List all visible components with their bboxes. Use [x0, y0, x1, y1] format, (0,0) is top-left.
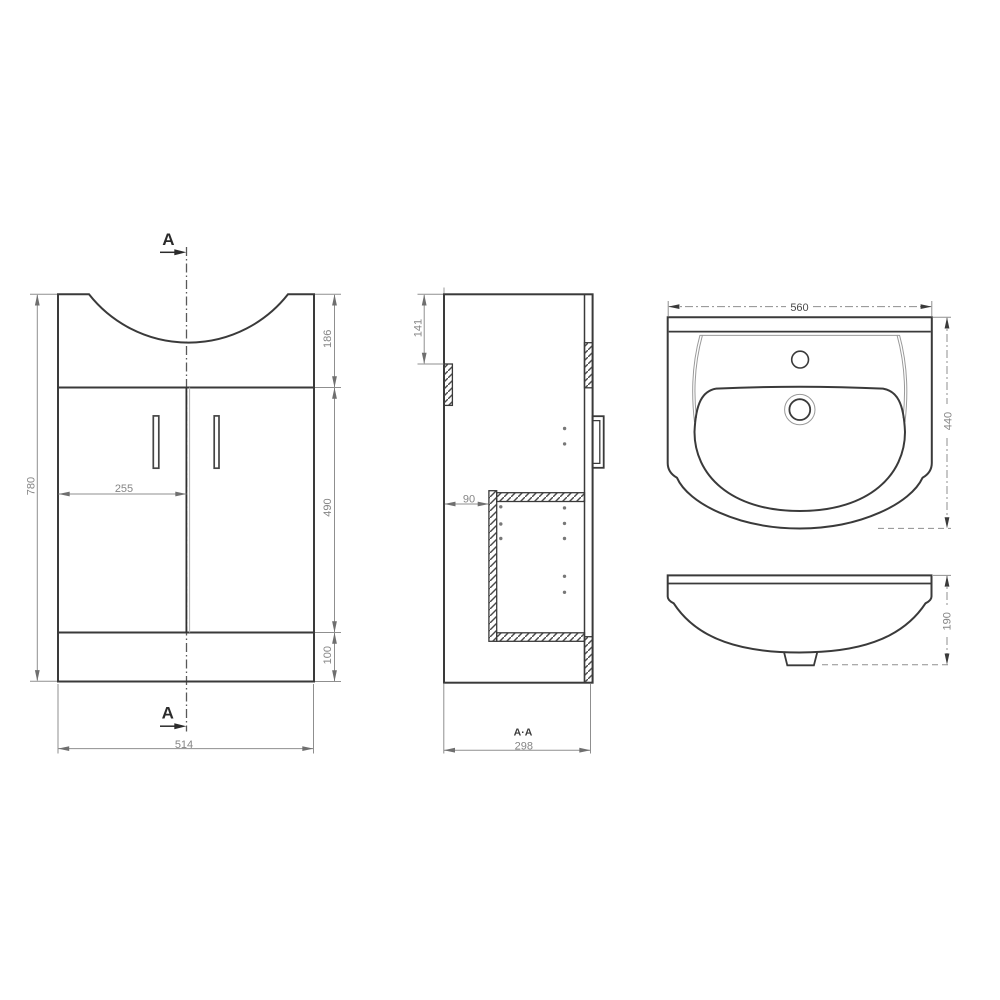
svg-text:A·A: A·A — [514, 727, 533, 739]
svg-text:141: 141 — [413, 319, 425, 337]
svg-text:298: 298 — [515, 741, 533, 753]
svg-text:255: 255 — [115, 483, 133, 495]
svg-text:100: 100 — [322, 646, 334, 664]
svg-text:514: 514 — [175, 739, 193, 751]
svg-text:780: 780 — [26, 477, 38, 495]
svg-text:560: 560 — [790, 302, 808, 314]
svg-text:190: 190 — [942, 612, 954, 630]
svg-text:90: 90 — [463, 494, 475, 506]
svg-text:440: 440 — [943, 412, 955, 430]
svg-text:186: 186 — [322, 330, 334, 348]
svg-text:A: A — [162, 704, 174, 723]
svg-text:490: 490 — [322, 498, 334, 516]
svg-text:A: A — [162, 230, 174, 249]
